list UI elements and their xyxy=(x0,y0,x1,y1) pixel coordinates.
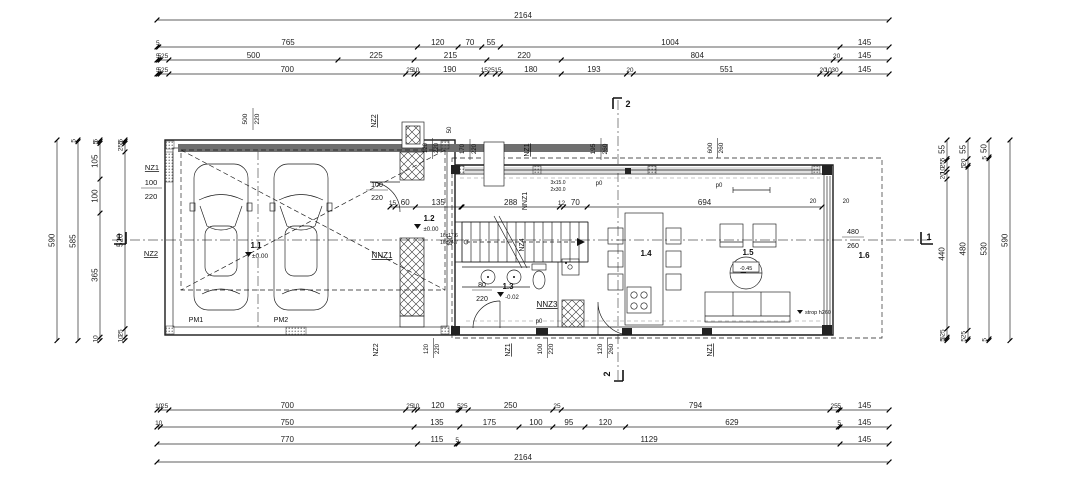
svg-text:70: 70 xyxy=(571,198,580,207)
svg-text:145: 145 xyxy=(858,65,872,74)
svg-text:115: 115 xyxy=(431,435,444,444)
stair-run-b: 16x24.7 xyxy=(440,240,458,246)
svg-text:145: 145 xyxy=(858,38,872,47)
svg-text:135: 135 xyxy=(432,198,446,207)
dim-row: 552550022521522080420145 xyxy=(155,51,892,63)
dim-row: 55205480255 xyxy=(958,138,970,343)
label-nz1-bottom-a: NZ1 xyxy=(505,343,512,356)
dim-row: 10750135175100951206295145 xyxy=(155,418,892,430)
svg-text:1129: 1129 xyxy=(640,435,658,444)
svg-text:25: 25 xyxy=(161,53,169,60)
dim-row: 590 xyxy=(1000,138,1012,343)
label-p0: p0 xyxy=(536,319,543,325)
armchair-2 xyxy=(753,224,776,247)
room-number-1-6: 1.6 xyxy=(858,251,870,260)
label-nz1-height: 220 xyxy=(145,192,158,201)
bath-door-width: 80 xyxy=(478,282,486,289)
dim-20-b: 20 xyxy=(843,199,850,205)
label-strop: strop h260 xyxy=(805,310,831,316)
svg-text:770: 770 xyxy=(281,435,295,444)
svg-text:10: 10 xyxy=(155,420,163,427)
dim-row: 5552510204402555 xyxy=(937,138,949,343)
svg-text:190: 190 xyxy=(443,65,457,74)
svg-text:590: 590 xyxy=(1000,233,1009,247)
svg-text:5: 5 xyxy=(939,157,946,161)
svg-text:5: 5 xyxy=(837,420,841,427)
nnz1-wall-bottom xyxy=(400,238,424,316)
win-bottom-120-260-h: 260 xyxy=(608,343,615,354)
win-top-120-h: 220 xyxy=(434,142,440,153)
chair xyxy=(608,251,623,267)
top-dimension-block: 2164 576512070551004145 5525500225215220… xyxy=(155,11,892,77)
chair xyxy=(608,228,623,244)
garage-window-height: 220 xyxy=(254,113,261,124)
kitchen-sink xyxy=(562,259,579,275)
win-195-h: 260 xyxy=(602,143,609,154)
svg-text:5: 5 xyxy=(960,164,967,168)
entry-door-width: 100 xyxy=(371,182,383,189)
svg-text:25: 25 xyxy=(117,144,124,152)
room-level-1-1: ±0.00 xyxy=(252,253,269,260)
svg-text:5: 5 xyxy=(455,437,459,444)
label-nz2-top: NZ2 xyxy=(371,114,378,127)
svg-text:10: 10 xyxy=(117,335,124,343)
svg-text:551: 551 xyxy=(720,65,734,74)
label-nz1-bottom-b: NZ1 xyxy=(707,343,714,356)
svg-text:120: 120 xyxy=(431,401,445,410)
win-480-w: 480 xyxy=(847,229,859,236)
right-dimension-block: 5552510204402555 55205480255 5055305 590 xyxy=(937,138,1012,343)
chair xyxy=(608,274,623,290)
svg-text:288: 288 xyxy=(504,198,518,207)
svg-text:50: 50 xyxy=(979,144,988,153)
nnz1-wall-top xyxy=(400,152,424,180)
svg-text:10: 10 xyxy=(412,403,420,410)
svg-text:145: 145 xyxy=(858,435,872,444)
svg-text:25: 25 xyxy=(161,403,169,410)
svg-text:629: 629 xyxy=(725,418,739,427)
dim-row: 1025700251012052525025794255145 xyxy=(155,401,892,413)
svg-text:5: 5 xyxy=(960,338,967,342)
sofa xyxy=(705,292,790,322)
living-furniture xyxy=(705,224,790,322)
svg-text:250: 250 xyxy=(504,401,518,410)
dim-row: 5055305 xyxy=(979,138,991,343)
label-pm2: PM2 xyxy=(274,317,289,324)
section-mark-2-top: 2 xyxy=(625,99,630,109)
svg-text:145: 145 xyxy=(858,401,872,410)
svg-text:20: 20 xyxy=(939,172,946,180)
svg-text:55: 55 xyxy=(958,144,967,153)
dim-row: 576512070551004145 xyxy=(155,38,892,50)
level-mark xyxy=(797,310,803,314)
win-top-170-w: 170 xyxy=(460,143,466,154)
svg-text:794: 794 xyxy=(689,401,703,410)
dim-row: 2164 xyxy=(155,11,892,23)
label-nz2-bottom: NZ2 xyxy=(373,343,380,356)
svg-text:30: 30 xyxy=(831,67,839,74)
dim-50: 50 xyxy=(447,126,453,133)
svg-text:365: 365 xyxy=(90,268,99,282)
label-nz1-top: NZ1 xyxy=(524,143,531,156)
label-nnz1-stair: NNZ1 xyxy=(522,192,529,210)
window-nz1-left xyxy=(165,152,173,182)
svg-text:1004: 1004 xyxy=(661,38,679,47)
label-p0: p0 xyxy=(716,183,723,189)
svg-text:100: 100 xyxy=(90,189,99,203)
svg-text:100: 100 xyxy=(529,418,543,427)
svg-text:25: 25 xyxy=(553,403,561,410)
label-nnz1-garage: NNZ1 xyxy=(372,251,393,260)
svg-text:220: 220 xyxy=(517,51,531,60)
svg-text:700: 700 xyxy=(281,65,295,74)
svg-text:5: 5 xyxy=(837,403,841,410)
svg-text:750: 750 xyxy=(281,418,295,427)
stove xyxy=(627,287,651,313)
svg-text:10: 10 xyxy=(412,67,420,74)
svg-text:15: 15 xyxy=(389,200,397,207)
svg-text:15: 15 xyxy=(494,67,502,74)
label-nnz3: NNZ3 xyxy=(537,300,558,309)
level-mark xyxy=(497,292,504,297)
section-mark-2-bottom: 2 xyxy=(602,371,612,376)
win-600-h: 260 xyxy=(718,142,725,153)
car-pm1 xyxy=(190,164,252,310)
svg-text:585: 585 xyxy=(68,234,77,248)
win-bottom-120-220-h: 220 xyxy=(435,343,441,354)
svg-text:180: 180 xyxy=(524,65,538,74)
svg-text:25: 25 xyxy=(161,67,169,74)
toilet xyxy=(533,271,545,289)
stair-direction-arrow xyxy=(577,238,585,246)
svg-text:193: 193 xyxy=(587,65,601,74)
bench xyxy=(733,187,770,193)
svg-text:225: 225 xyxy=(369,51,383,60)
section-mark-1-right: 1 xyxy=(926,232,931,242)
interior-dimension-lines: 1560135 2881270694 xyxy=(388,198,825,210)
svg-text:530: 530 xyxy=(979,242,988,256)
dim-row: 2881270694 xyxy=(460,198,825,210)
label-nz2-left: NZ2 xyxy=(144,249,158,258)
chair xyxy=(666,274,681,290)
entry-door-height: 220 xyxy=(371,195,383,202)
svg-text:694: 694 xyxy=(698,198,712,207)
svg-text:12: 12 xyxy=(558,200,566,207)
win-top-170-h: 220 xyxy=(472,143,478,154)
nnz3-wall xyxy=(562,300,584,327)
svg-text:60: 60 xyxy=(401,198,410,207)
svg-text:480: 480 xyxy=(958,242,967,256)
svg-text:145: 145 xyxy=(858,418,872,427)
win-600-w: 600 xyxy=(707,142,714,153)
win-480-h: 260 xyxy=(847,243,859,250)
section-line-2 xyxy=(613,98,623,383)
win-bottom-120-220-w: 120 xyxy=(424,343,430,354)
stair-note-a: 3x15.0 xyxy=(550,180,565,186)
label-nz4-stair: NZ4 xyxy=(519,238,526,251)
svg-text:95: 95 xyxy=(564,418,573,427)
svg-text:25: 25 xyxy=(460,403,468,410)
svg-text:804: 804 xyxy=(691,51,705,60)
bath-door-arc xyxy=(473,301,500,328)
win-top-120-w: 120 xyxy=(423,142,429,153)
room-level-1-2: ±0.00 xyxy=(424,227,440,233)
room-number-1-3: 1.3 xyxy=(502,282,514,291)
stair-run-a: 16x17.6 xyxy=(440,233,458,239)
svg-text:590: 590 xyxy=(47,233,56,247)
label-pm1: PM1 xyxy=(189,317,204,324)
bath-door-height: 220 xyxy=(476,296,488,303)
svg-text:55: 55 xyxy=(487,38,496,47)
chair xyxy=(666,228,681,244)
dim-20-a: 20 xyxy=(810,199,817,205)
floor-plan-page: 2164 576512070551004145 5525500225215220… xyxy=(0,0,1080,488)
stair-note-b: 2x30.0 xyxy=(550,187,565,193)
floor-plan-drawing: 2164 576512070551004145 5525500225215220… xyxy=(0,0,1080,488)
win-bottom-120-260-w: 120 xyxy=(597,343,604,354)
svg-text:5: 5 xyxy=(117,140,124,144)
dim-row: 2164 xyxy=(155,453,892,465)
label-p0: p0 xyxy=(596,181,603,187)
room-level-1-5: -0.45 xyxy=(740,266,753,272)
dim-row: 5585 xyxy=(68,138,80,343)
svg-text:120: 120 xyxy=(431,38,445,47)
level-mark xyxy=(414,224,421,229)
dining-table xyxy=(625,213,663,325)
room-number-1-1: 1.1 xyxy=(250,241,262,250)
svg-text:5: 5 xyxy=(939,338,946,342)
dim-row: 5510510036510 xyxy=(90,138,102,343)
svg-text:215: 215 xyxy=(444,51,458,60)
svg-text:10: 10 xyxy=(92,335,99,343)
room-number-1-4: 1.4 xyxy=(640,249,652,258)
svg-text:25: 25 xyxy=(939,329,946,337)
svg-text:5: 5 xyxy=(981,338,988,342)
svg-text:20: 20 xyxy=(626,67,634,74)
dim-row: 5525700251019015251518019320551201030145 xyxy=(155,65,892,77)
svg-text:105: 105 xyxy=(90,154,99,168)
svg-text:2164: 2164 xyxy=(514,11,532,20)
label-nz1-width: 100 xyxy=(145,178,158,187)
car-pm2 xyxy=(270,164,332,310)
svg-text:440: 440 xyxy=(937,247,946,261)
svg-text:5: 5 xyxy=(70,139,77,143)
svg-text:700: 700 xyxy=(281,401,295,410)
win-bottom-100-w: 100 xyxy=(537,343,544,354)
win-195-w: 195 xyxy=(590,143,597,154)
garage-window-width: 500 xyxy=(242,113,249,124)
win-bottom-100-h: 220 xyxy=(548,343,555,354)
dim-row: 590 xyxy=(47,138,59,343)
room-number-1-5: 1.5 xyxy=(742,248,754,257)
svg-text:175: 175 xyxy=(483,418,497,427)
svg-text:765: 765 xyxy=(281,38,295,47)
upper-floor-band xyxy=(178,144,608,152)
svg-text:55: 55 xyxy=(937,144,946,153)
label-nz1-left: NZ1 xyxy=(145,163,159,172)
svg-text:5: 5 xyxy=(92,140,99,144)
svg-text:20: 20 xyxy=(833,53,841,60)
svg-text:500: 500 xyxy=(247,51,261,60)
dim-row: 77011551129145 xyxy=(155,435,892,447)
svg-text:70: 70 xyxy=(465,38,474,47)
svg-text:120: 120 xyxy=(599,418,613,427)
svg-text:25: 25 xyxy=(960,331,967,339)
section-mark-1-left: 1 xyxy=(116,232,121,242)
shaft xyxy=(484,142,504,186)
svg-text:2164: 2164 xyxy=(514,453,532,462)
svg-text:145: 145 xyxy=(858,51,872,60)
svg-text:5: 5 xyxy=(156,40,160,47)
bottom-dimension-block: 1025700251012052525025794255145 10750135… xyxy=(155,401,892,465)
svg-text:135: 135 xyxy=(430,418,444,427)
room-level-1-3: -0.02 xyxy=(505,295,519,301)
svg-text:5: 5 xyxy=(981,156,988,160)
chair xyxy=(666,251,681,267)
armchair-1 xyxy=(720,224,743,247)
room-number-1-2: 1.2 xyxy=(423,214,435,223)
